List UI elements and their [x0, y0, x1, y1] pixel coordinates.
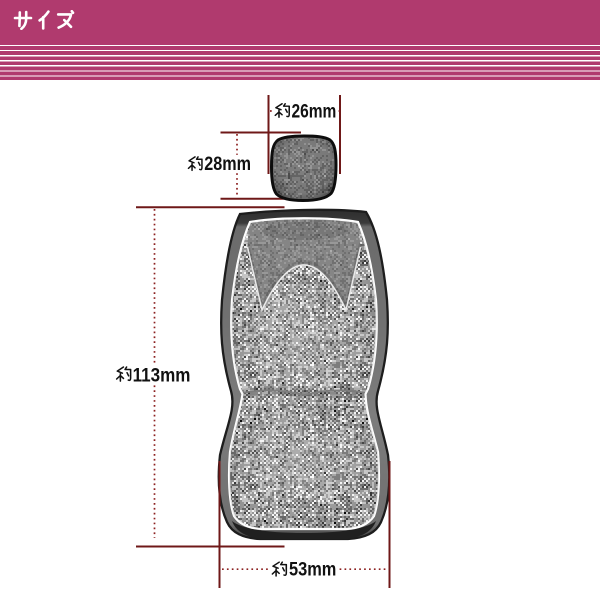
- svg-text:53mm: 53mm: [289, 558, 336, 580]
- svg-text:113mm: 113mm: [133, 363, 191, 385]
- svg-text:28mm: 28mm: [204, 153, 251, 175]
- svg-text:26mm: 26mm: [292, 100, 337, 122]
